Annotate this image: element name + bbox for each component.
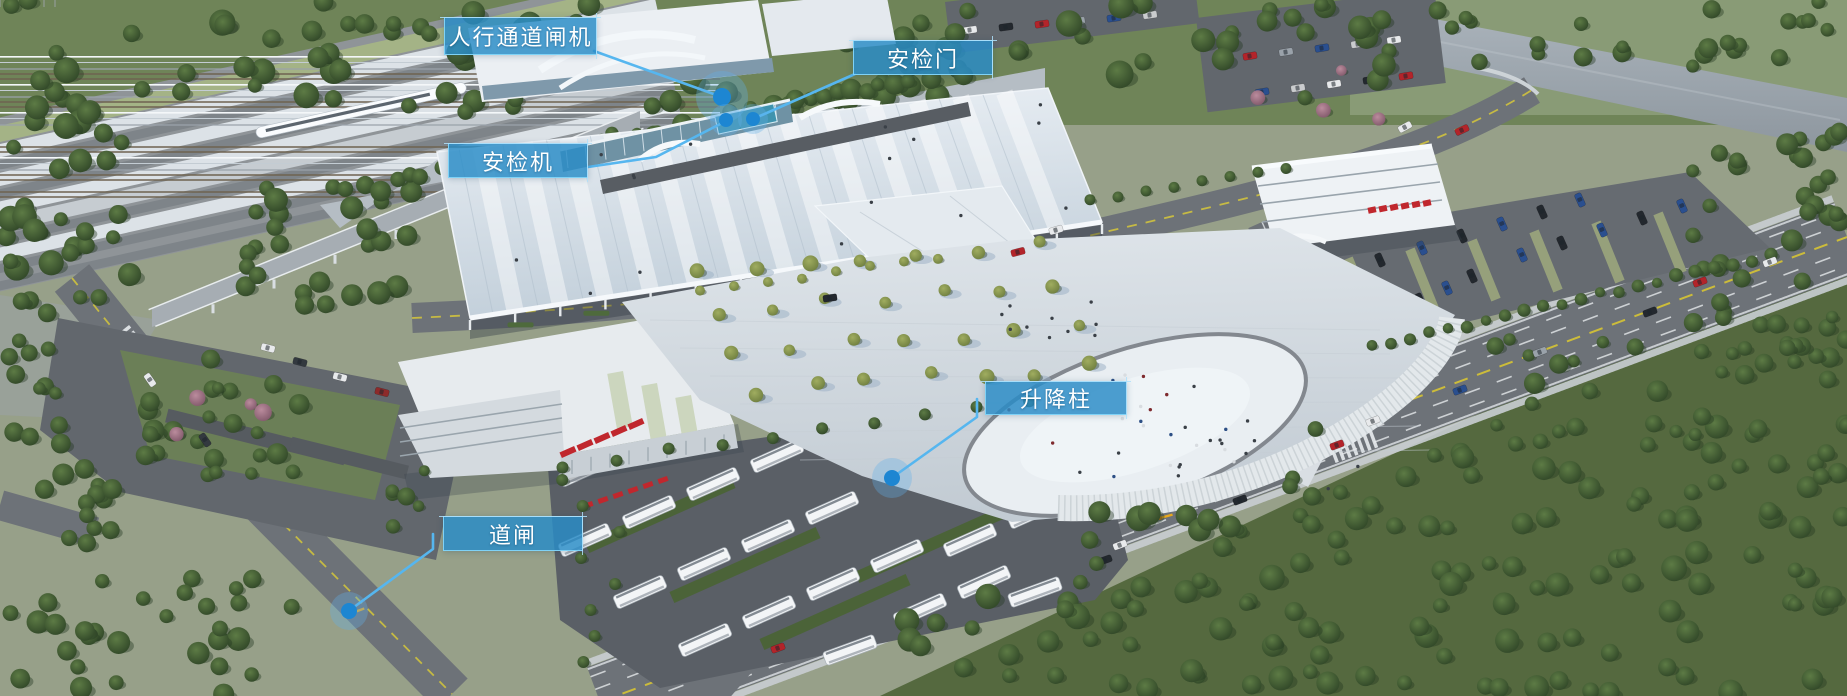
leader-line-security-check-door xyxy=(753,74,855,119)
station-aerial-render: 人行通道闸机 安检门 安检机 升降柱 道闸 xyxy=(0,0,1847,696)
anchor-dot-security-check-door xyxy=(746,112,760,126)
anchor-dot-barrier-gate xyxy=(341,603,357,619)
leader-line-security-check-machine xyxy=(588,121,726,167)
anchor-dot-security-check-machine xyxy=(719,113,733,127)
callout-security-check-machine xyxy=(588,104,742,167)
anchor-dot-lifting-bollard xyxy=(884,470,900,486)
callout-leader-lines xyxy=(0,0,1847,696)
callout-lifting-bollard xyxy=(872,399,977,498)
anchor-dot-pedestrian-channel-gate xyxy=(713,88,731,106)
callout-security-check-door xyxy=(738,74,855,134)
callout-barrier-gate xyxy=(330,534,433,630)
